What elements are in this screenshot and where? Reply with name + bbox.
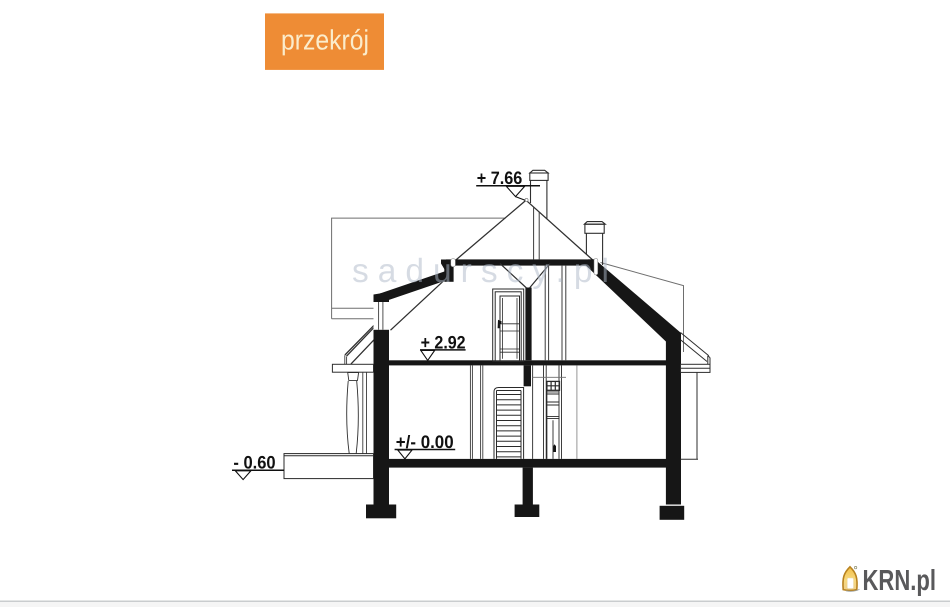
svg-text:KRN.pl: KRN.pl bbox=[863, 565, 937, 597]
svg-text:- 0.60: - 0.60 bbox=[233, 452, 275, 472]
svg-text:+ 7.66: + 7.66 bbox=[477, 168, 523, 188]
svg-text:przekrój: przekrój bbox=[281, 25, 369, 56]
svg-text:sadurscy.pl: sadurscy.pl bbox=[352, 253, 617, 290]
